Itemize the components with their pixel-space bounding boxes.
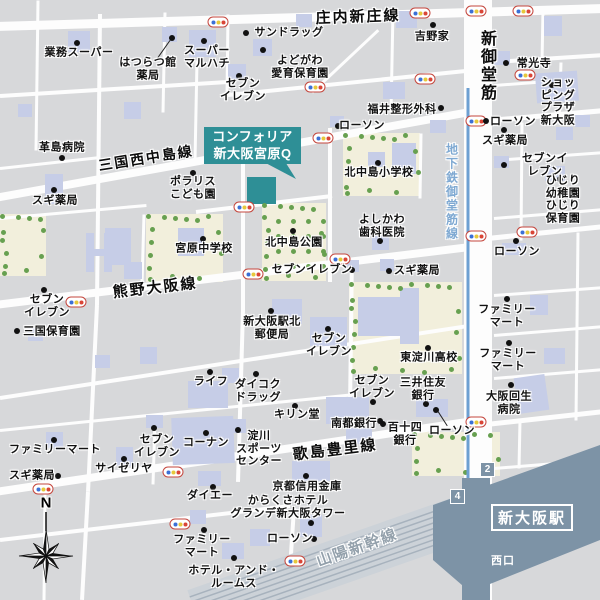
- poi-label: ひじり幼稚園 ひじり保育園: [545, 175, 582, 226]
- poi-label: セブン イレブン: [24, 293, 70, 318]
- poi-label: ホテル・アンド・ ルームス: [188, 564, 280, 589]
- poi-label: 淀川 スポーツ センター: [236, 430, 282, 468]
- poi-label: キリン堂: [274, 409, 320, 422]
- poi-label: サンドラッグ: [255, 27, 324, 40]
- poi-label: ローソン: [494, 246, 540, 259]
- poi-label: スーパー マルハチ: [184, 44, 230, 69]
- poi-label: セブン イレブン: [220, 77, 266, 102]
- road-name-label: 三国西中島線: [97, 141, 195, 176]
- poi-label: ファミリー マート: [173, 533, 231, 558]
- poi-label: ローソン: [490, 116, 536, 129]
- map-canvas: 業務スーパーはつらつ館 薬局スーパー マルハチサンドラッグよどがわ 愛育保育園セ…: [0, 0, 600, 600]
- poi-label: 東淀川高校: [400, 352, 458, 365]
- poi-label: 新大阪駅北 郵便局: [243, 315, 301, 340]
- station-label: 新大阪駅: [491, 504, 573, 531]
- poi-label: サイゼリヤ: [95, 463, 153, 476]
- poi-label: スギ薬局: [32, 195, 78, 208]
- poi-label: セブン イレブン: [134, 433, 180, 458]
- poi-label: 吉野家: [415, 31, 450, 44]
- poi-label: 大阪回生 病院: [486, 390, 532, 415]
- poi-label: 南都銀行: [331, 418, 377, 431]
- property-callout-line1: コンフォリア: [212, 129, 293, 146]
- compass-north-label: N: [41, 495, 52, 512]
- poi-label: 三国保育園: [23, 326, 81, 339]
- poi-label: ファミリーマート: [9, 444, 101, 457]
- poi-label: 北中島小学校: [345, 167, 414, 180]
- property-callout: コンフォリア 新大阪宮原Q: [204, 127, 301, 164]
- road-name-label: 歌島豊里線: [292, 433, 379, 464]
- poi-label: ダイコク ドラッグ: [235, 378, 281, 403]
- poi-label: 福井整形外科: [368, 104, 437, 117]
- poi-label: 常光寺: [517, 58, 552, 71]
- poi-label: 三井住友 銀行: [400, 376, 446, 401]
- poi-label: ローソン: [429, 425, 475, 438]
- poi-label: ファミリー マート: [478, 303, 536, 328]
- road-name-label: 山陽新幹線: [313, 523, 400, 571]
- road-name-label: 熊野大阪線: [112, 272, 199, 302]
- poi-label: スギ薬局: [9, 470, 55, 483]
- poi-label: 業務スーパー: [45, 47, 114, 60]
- poi-label: ローソン: [267, 533, 313, 546]
- poi-label: セブン イレブン: [306, 332, 352, 357]
- poi-label: コーナン: [183, 437, 229, 450]
- poi-label: セブン イレブン: [349, 374, 395, 399]
- poi-label: ファミリー マート: [479, 347, 537, 372]
- poi-label: スギ薬局: [394, 265, 440, 278]
- property-callout-line2: 新大阪宮原Q: [213, 146, 291, 163]
- poi-label: はつらつ館 薬局: [119, 56, 177, 81]
- poi-label: からくさホテル グランデ新大阪タワー: [231, 494, 346, 519]
- poi-label: 革島病院: [39, 142, 85, 155]
- poi-label: セブンイレブン: [272, 264, 353, 277]
- road-name-label: 新御堂筋: [474, 30, 498, 102]
- poi-label: ショッピング プラザ新大阪: [537, 77, 579, 128]
- road-name-label: 地下鉄御堂筋線: [444, 143, 461, 241]
- poi-label: 京都信用金庫: [273, 481, 342, 494]
- west-exit-label: 西口: [487, 553, 519, 569]
- poi-label: 北中島公園: [265, 237, 323, 250]
- subway-exit-2-badge: 2: [480, 462, 495, 477]
- poi-label: ダイエー: [187, 490, 233, 503]
- poi-label: ライフ: [194, 376, 229, 389]
- poi-label: ローソン: [339, 120, 385, 133]
- poi-label: スギ薬局: [482, 135, 528, 148]
- poi-label: 宮原中学校: [175, 243, 233, 256]
- poi-label: よどがわ 愛育保育園: [271, 54, 329, 79]
- poi-label: 百十四 銀行: [388, 421, 423, 446]
- road-name-label: 庄内新庄線: [315, 4, 401, 28]
- poi-label: よしかわ 歯科医院: [359, 213, 405, 238]
- subway-exit-4-badge: 4: [450, 489, 465, 504]
- poi-label: ポラリス こども園: [170, 175, 216, 200]
